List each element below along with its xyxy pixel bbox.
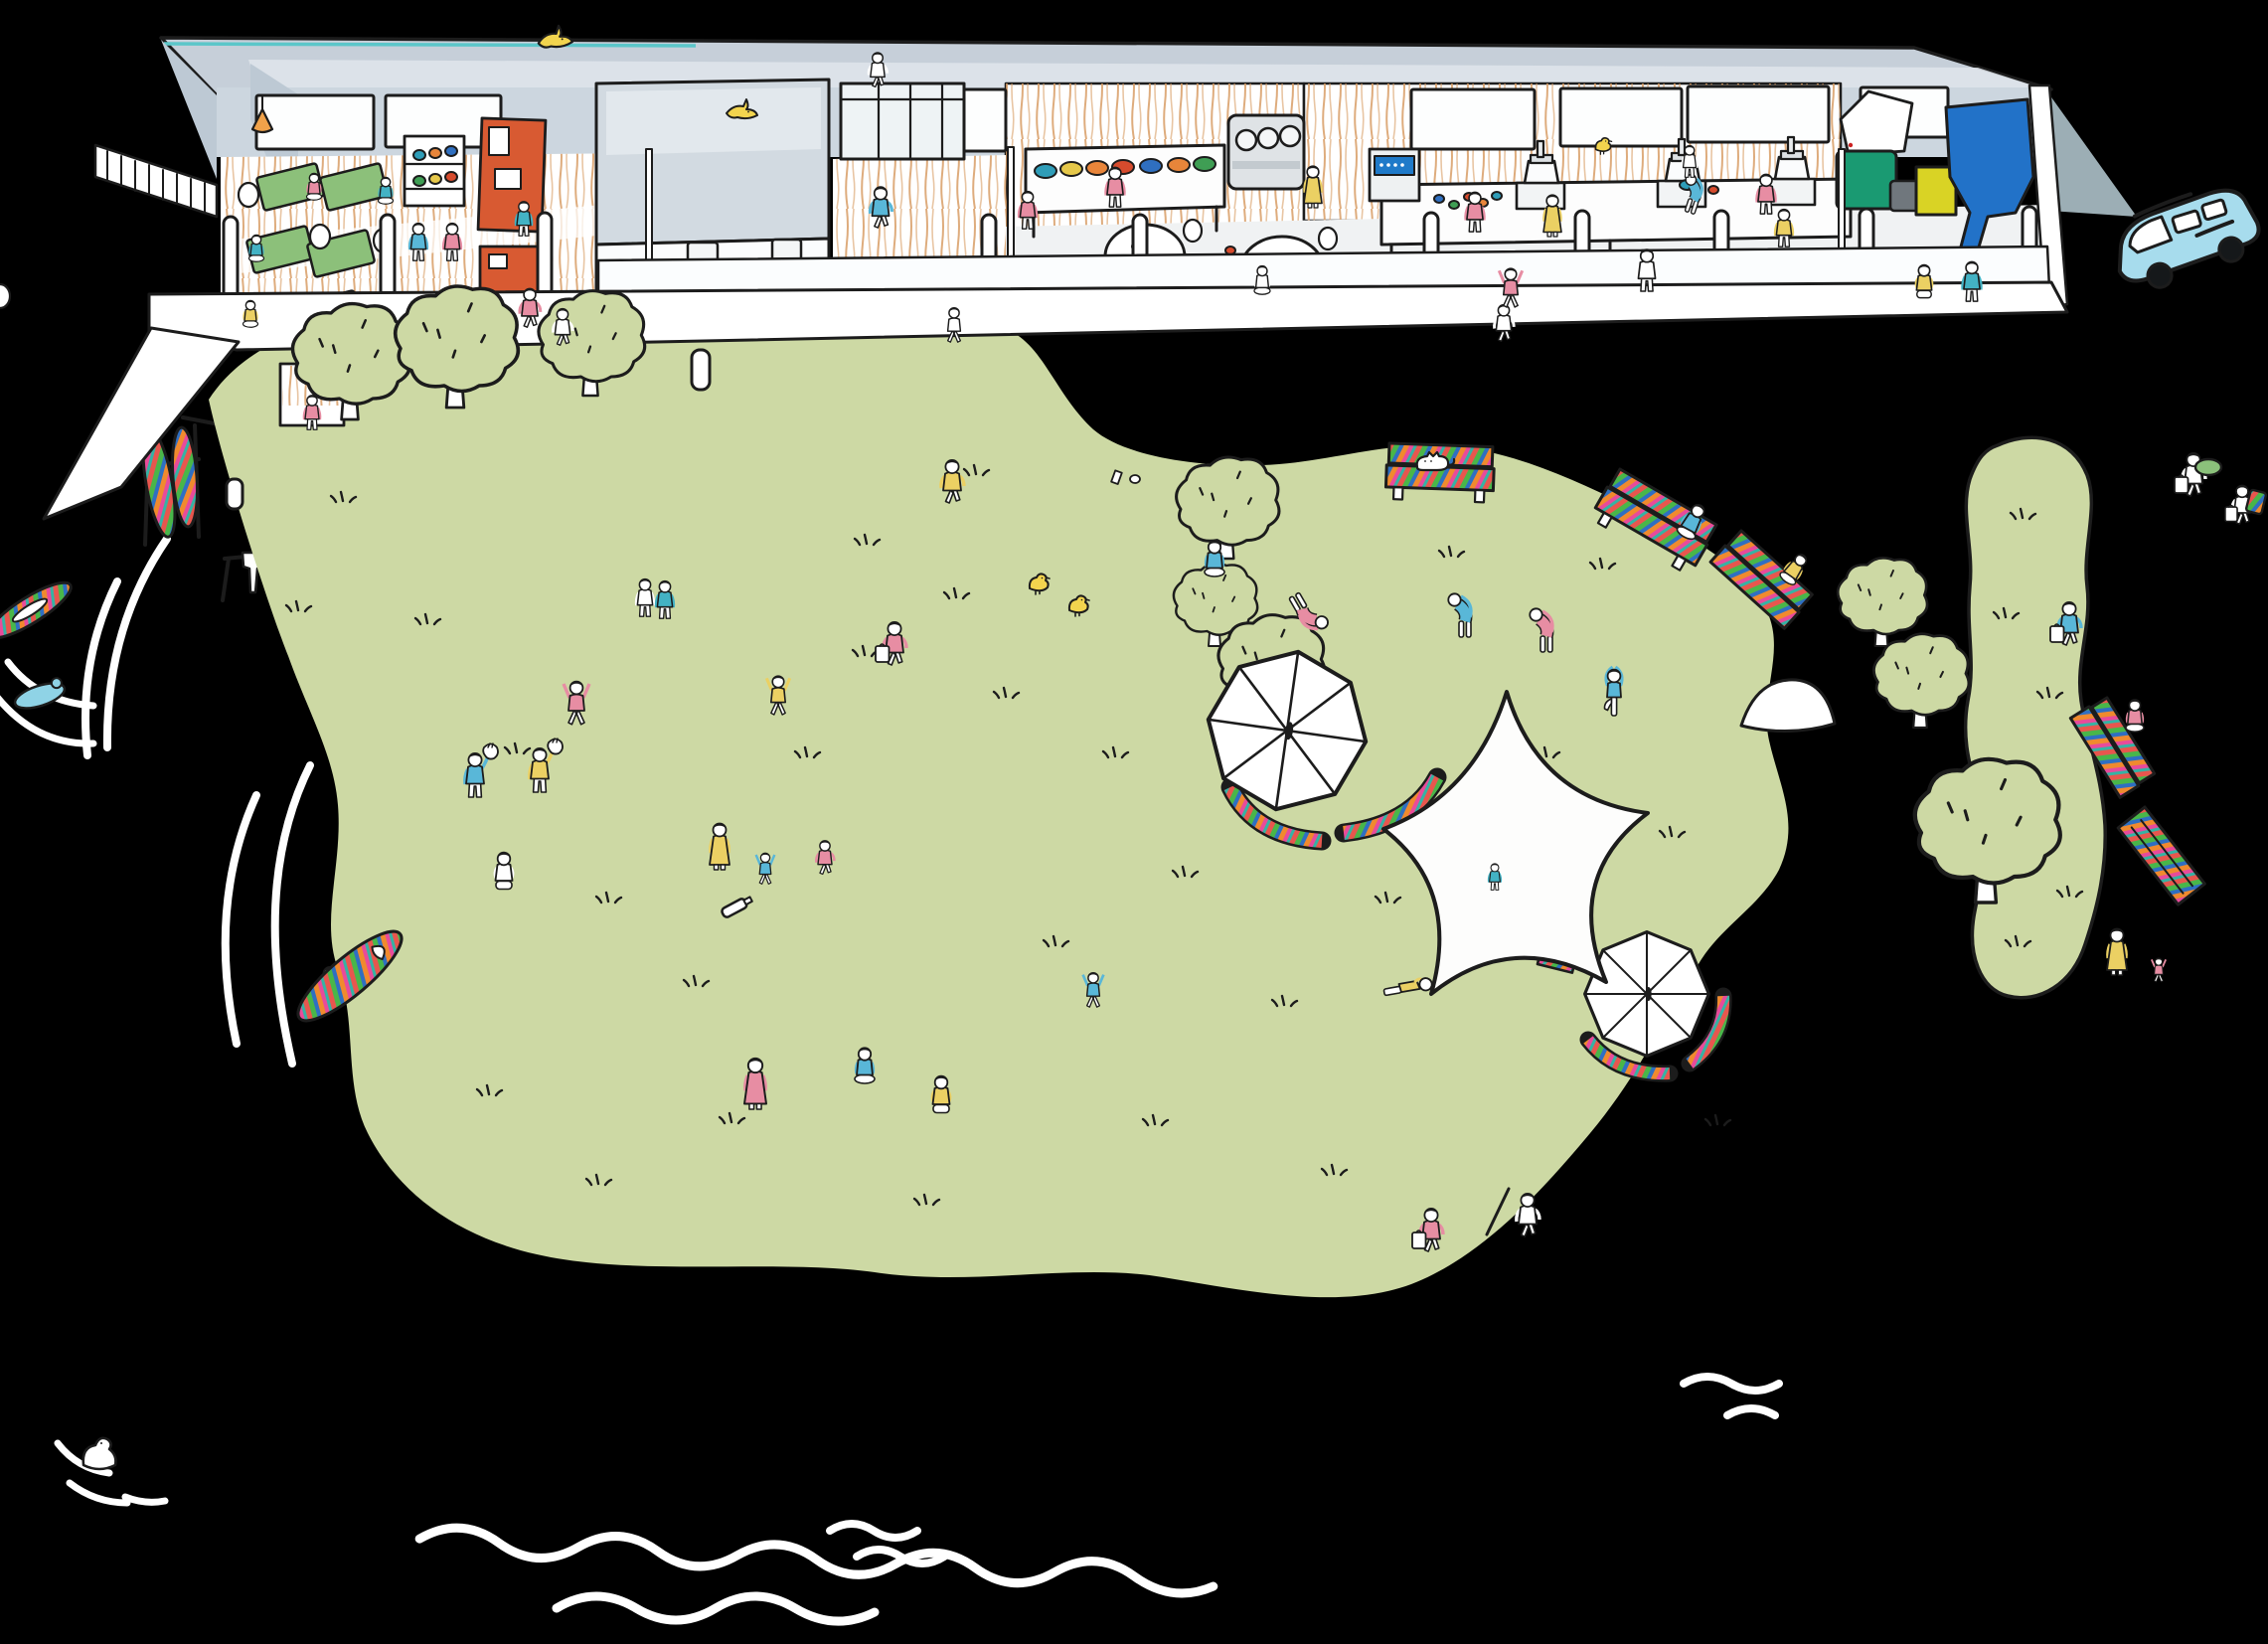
window (1411, 89, 1535, 149)
green-basket (2195, 459, 2221, 475)
cafe-coffee-counter (478, 118, 546, 298)
person-dress (744, 1058, 766, 1109)
colorful-dish (1492, 192, 1502, 200)
roof-edge-teal (164, 44, 696, 46)
person-sit (243, 300, 258, 327)
colorful-dish (1708, 186, 1718, 194)
kitchen-machine (1228, 115, 1304, 189)
colorful-dish (429, 174, 441, 184)
person-sit (249, 235, 264, 261)
colorful-dish (1035, 164, 1056, 178)
person-sit (307, 173, 322, 200)
park-illustration-stage (0, 0, 2268, 1644)
person-kneel (932, 1075, 950, 1112)
pier-leg (227, 479, 243, 509)
colorful-dish (1449, 201, 1459, 209)
person-sit (2126, 700, 2144, 732)
lobby-roof-sheen (606, 87, 821, 155)
person-dress (1304, 166, 1322, 208)
window (1560, 88, 1682, 146)
person-kneel (1916, 264, 1932, 297)
person-dress (2107, 928, 2127, 975)
colorful-dish (1140, 159, 1162, 173)
person-dress (1543, 195, 1561, 237)
colorful-dish (429, 148, 441, 158)
park-illustration-map (0, 0, 2268, 1644)
pier-leg (692, 350, 710, 390)
colorful-dish (1434, 195, 1444, 203)
front-column (538, 213, 552, 296)
person-sit (1254, 265, 1270, 294)
colorful-dish (1194, 157, 1215, 171)
colorful-dish (1086, 161, 1108, 175)
colorful-dish (1168, 158, 1190, 172)
person-sit (855, 1048, 875, 1083)
person-dress (710, 823, 729, 870)
colorful-dish (413, 150, 425, 160)
colorful-dish (1060, 162, 1082, 176)
person-sit (1205, 541, 1224, 576)
colorful-dish (413, 176, 425, 186)
entrance-glass-wall (841, 83, 964, 159)
window (1688, 86, 1829, 142)
colorful-dish (445, 172, 457, 182)
front-column (381, 215, 395, 298)
person-sit (379, 177, 394, 204)
window (256, 95, 374, 149)
front-column (224, 217, 238, 300)
colorful-dish (445, 146, 457, 156)
lab-control-cabinet (1370, 149, 1419, 201)
person-kneel (495, 852, 513, 889)
